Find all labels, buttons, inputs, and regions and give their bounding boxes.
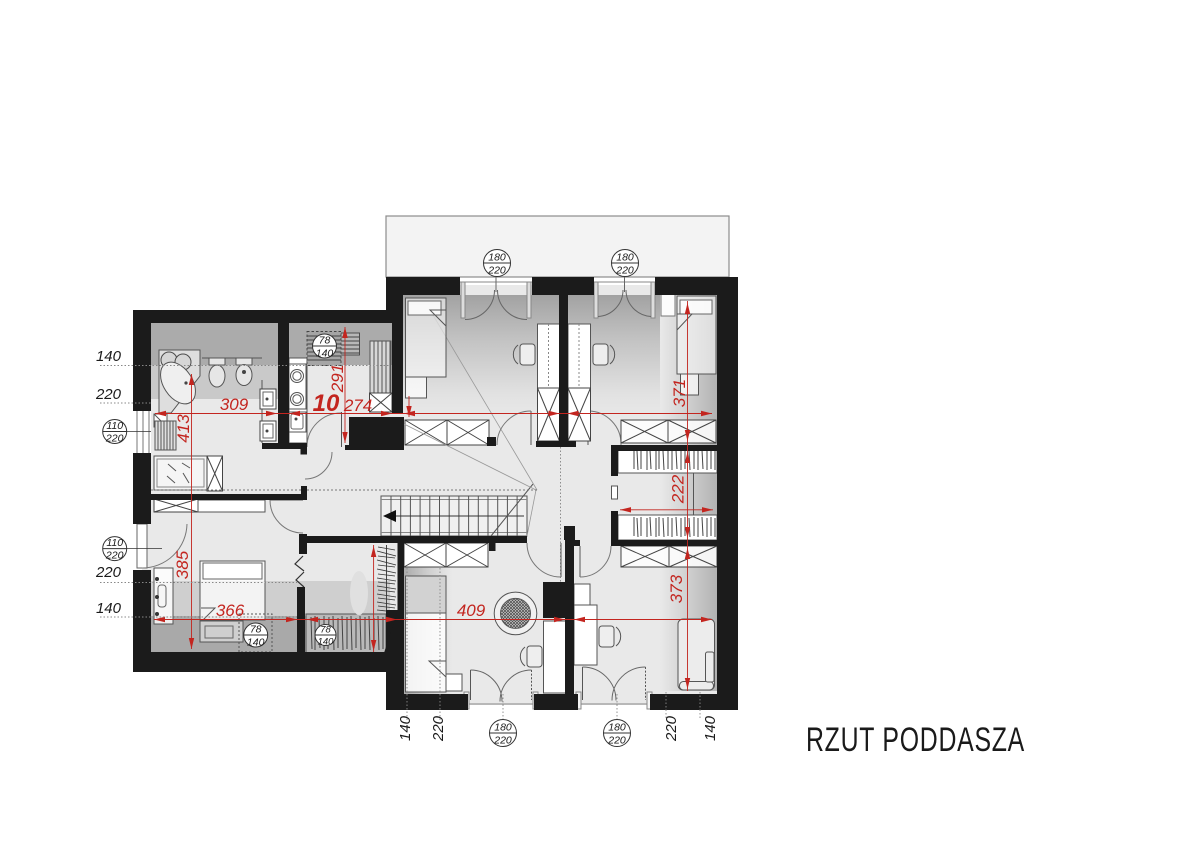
svg-text:140: 140 <box>702 715 719 741</box>
svg-text:373: 373 <box>667 574 686 603</box>
svg-text:180: 180 <box>616 252 634 264</box>
svg-text:140: 140 <box>397 715 414 741</box>
svg-text:180: 180 <box>488 252 506 264</box>
svg-text:385: 385 <box>173 550 192 579</box>
svg-text:220: 220 <box>105 550 124 562</box>
svg-text:220: 220 <box>663 715 680 742</box>
svg-text:140: 140 <box>96 348 122 365</box>
svg-text:309: 309 <box>220 395 249 414</box>
svg-text:220: 220 <box>493 735 512 747</box>
svg-text:220: 220 <box>487 265 506 277</box>
svg-text:220: 220 <box>430 715 447 742</box>
svg-text:RZUT PODDASZA: RZUT PODDASZA <box>806 721 1025 759</box>
svg-text:413: 413 <box>174 414 193 443</box>
svg-text:78: 78 <box>319 335 331 347</box>
svg-text:371: 371 <box>670 379 689 407</box>
svg-text:180: 180 <box>494 722 512 734</box>
svg-text:291: 291 <box>328 364 347 393</box>
svg-text:222: 222 <box>669 474 688 504</box>
svg-text:110: 110 <box>106 537 123 549</box>
svg-text:220: 220 <box>607 735 626 747</box>
svg-text:140: 140 <box>318 637 335 648</box>
svg-text:140: 140 <box>96 600 122 617</box>
svg-text:110: 110 <box>106 420 123 432</box>
svg-text:220: 220 <box>95 564 122 581</box>
svg-text:220: 220 <box>95 386 122 403</box>
svg-text:409: 409 <box>457 601 486 620</box>
svg-text:274: 274 <box>343 396 372 415</box>
svg-text:140: 140 <box>316 348 334 360</box>
svg-text:220: 220 <box>105 433 124 445</box>
svg-text:78: 78 <box>250 624 262 636</box>
svg-text:140: 140 <box>247 637 265 649</box>
svg-text:180: 180 <box>608 722 626 734</box>
svg-text:78: 78 <box>320 625 331 636</box>
svg-text:220: 220 <box>615 265 634 277</box>
svg-text:10: 10 <box>313 390 340 417</box>
